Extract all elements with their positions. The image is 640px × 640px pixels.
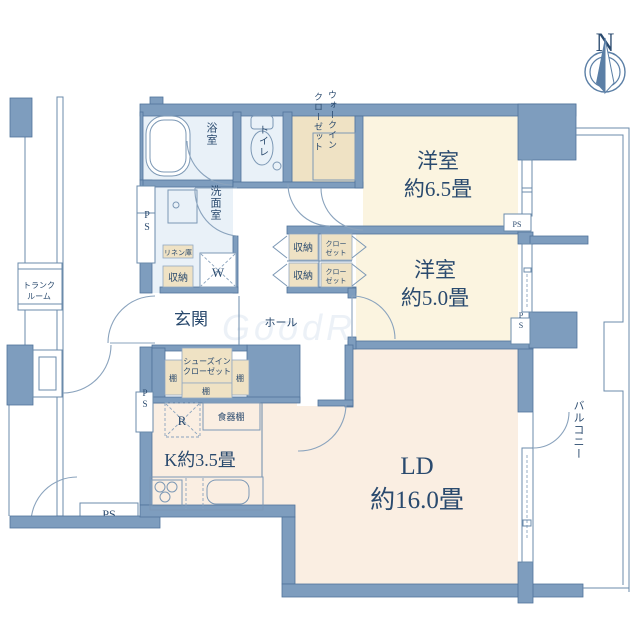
compass: N [585, 28, 625, 93]
wall-ld-right-lower [518, 562, 533, 603]
shoes-closet-label-2: クローゼット [183, 366, 231, 376]
toilet-label: トイレ [257, 125, 269, 158]
kitchen-label: K約3.5畳 [164, 450, 236, 470]
balcony-inner-edge [576, 135, 623, 585]
fridge-label: R [178, 413, 187, 428]
wic-label-1: ウォークイン [327, 90, 337, 150]
wall-shoes-left [152, 348, 165, 403]
closet2-label-1: クロー [326, 268, 347, 276]
ld-name: LD [400, 453, 433, 480]
wall-hall-top [233, 182, 363, 188]
floor-plan-svg: GoodRoom トランク ルーム PS [0, 0, 640, 640]
balcony-partition-wall [529, 312, 577, 348]
hall-storage-block: 収納 収納 クロー ゼット クロー ゼット [273, 234, 366, 287]
closet1-label-1: クロー [326, 240, 347, 248]
pillar-top-right [518, 104, 576, 160]
corridor-door-arc-upper [63, 345, 111, 393]
washer-label: W [212, 265, 225, 280]
wall-step [282, 517, 295, 584]
balcony-door-arc [533, 412, 569, 448]
corridor-bottom-wall [10, 516, 160, 528]
shoes-in-closet: シューズイン クローゼット 棚 棚 棚 [165, 348, 249, 398]
wall-toilet-wic [283, 112, 292, 182]
wall-ld-bottom [282, 584, 583, 597]
floor-plan: GoodRoom トランク ルーム PS [0, 0, 640, 640]
balcony-outer-edge [576, 128, 629, 592]
wall-ld-door-head [318, 400, 353, 406]
trunk-room-label-1: トランク [23, 281, 55, 290]
trunk-room-label-2: ルーム [27, 292, 51, 301]
wall-block-hall-south [247, 345, 300, 402]
wall-left-bath [140, 112, 143, 180]
washroom-storage-label: 収納 [168, 271, 188, 284]
wall-bedroom2-bottom [348, 341, 533, 349]
hall-label: ホール [265, 316, 298, 329]
wall-passage-right [345, 345, 353, 407]
pillar-bottom-left [7, 345, 33, 405]
pillar-top-left [10, 98, 32, 137]
cupboard-label: 食器棚 [217, 411, 244, 422]
toilet-door-arc [288, 184, 330, 226]
ps-label-ld: PS [517, 311, 526, 331]
closet2-label-2: ゼット [326, 276, 347, 285]
bedroom1-name: 洋室 [417, 149, 459, 173]
wall-bedroom-divider [287, 226, 518, 234]
storage-bifold-2 [273, 264, 287, 286]
shelf-label-bottom: 棚 [202, 386, 210, 396]
bedroom2-name: 洋室 [414, 258, 456, 282]
balcony: バルコニー [533, 128, 629, 592]
wall-closet-block-bottom [287, 287, 356, 293]
wall-wic-right [355, 116, 363, 188]
ps-label-left-upper: PS [142, 210, 153, 234]
entrance-label: 玄関 [174, 310, 208, 329]
shoes-closet-label-1: シューズイン [183, 356, 231, 366]
closet1-label-2: ゼット [326, 248, 347, 257]
left-wall-ps: PS PS [136, 186, 155, 432]
balcony-label: バルコニー [572, 400, 585, 460]
wic-door-arc [321, 188, 363, 230]
ld-floor-west [297, 406, 353, 505]
hall-upper-doors [321, 188, 363, 230]
wall-top [140, 104, 576, 116]
bathtub [146, 116, 190, 176]
shelf-label-left: 棚 [169, 373, 177, 383]
ld-floor-main [353, 348, 518, 584]
ld-size: 約16.0畳 [370, 486, 464, 514]
wic-label-2: クローゼット [313, 92, 323, 152]
bedroom1-size: 約6.5畳 [404, 177, 472, 201]
linen-label: リネン庫 [164, 248, 192, 257]
wall-washroom-bottom [160, 287, 238, 293]
wall-ld-right-upper [518, 341, 533, 412]
hall-storage-label-2: 収納 [293, 269, 313, 282]
wall-bath-toilet [233, 112, 241, 182]
front-door-arc [108, 296, 155, 343]
bedroom2-size: 約5.0畳 [401, 286, 469, 310]
wic-floor [292, 112, 355, 182]
ps-label-bedrooms: PS [513, 220, 522, 229]
ld-window [522, 448, 533, 562]
ps-label-left-lower: PS [140, 388, 150, 410]
hall-storage-label-1: 収納 [293, 241, 313, 254]
wall-kitchen-bottom [140, 505, 295, 517]
balcony-divider-jut [530, 236, 588, 244]
bath-label: 浴室 [205, 122, 218, 146]
storage-bifold-1 [273, 236, 287, 258]
common-corridor: トランク ルーム PS [7, 97, 160, 528]
washroom-label: 洗面室 [209, 185, 222, 221]
shelf-label-right: 棚 [236, 373, 244, 383]
